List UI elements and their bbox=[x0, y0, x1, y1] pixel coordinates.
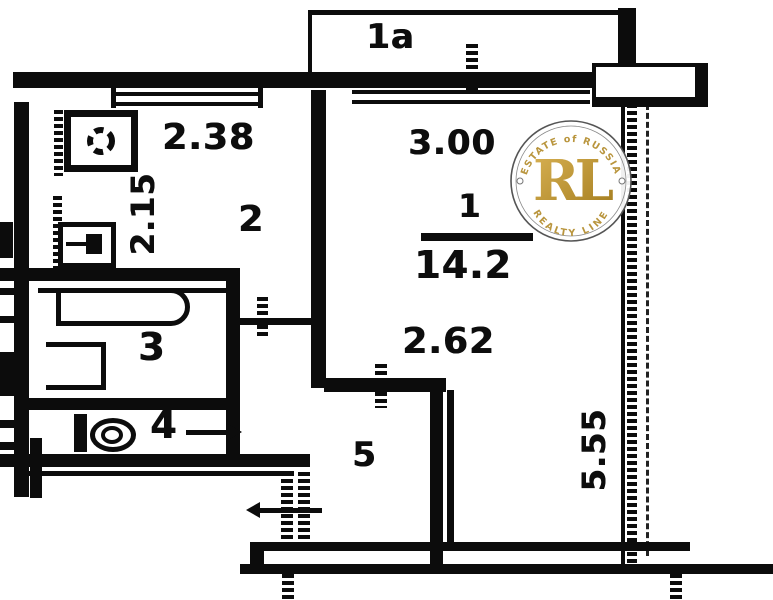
room-2-label: 2 bbox=[238, 202, 264, 238]
room-3-label: 3 bbox=[138, 328, 165, 366]
wall-wc-bottom bbox=[0, 454, 310, 467]
window-kitchen-line2 bbox=[114, 102, 262, 106]
toilet-tank-icon bbox=[74, 414, 87, 452]
watermark-monogram: RL bbox=[533, 148, 614, 214]
wall-left-lower bbox=[30, 438, 42, 498]
wall-bath-wc bbox=[24, 398, 226, 410]
wc-door-arrow-line bbox=[186, 430, 230, 435]
wall-balcony-left bbox=[308, 10, 312, 78]
balcony-label: 1a bbox=[366, 20, 415, 54]
wall-stub-left5 bbox=[0, 352, 20, 396]
wall-bottom-junction bbox=[250, 548, 264, 574]
wall-stub-left4 bbox=[20, 288, 27, 323]
wall-stub-left6 bbox=[0, 420, 28, 428]
wall-bottom-outer bbox=[240, 564, 773, 574]
stove-icon bbox=[64, 110, 138, 172]
floor-plan: 1a 2.38 2.15 2 3.00 1 14.2 2.62 5.55 3 4… bbox=[0, 0, 773, 600]
wall-balcony-top bbox=[308, 10, 634, 15]
window-kitchen-tick-right bbox=[258, 88, 263, 108]
kitchen-door-jamb bbox=[257, 297, 268, 339]
wall-bath-top bbox=[0, 268, 240, 281]
dim-room1-depth: 5.55 bbox=[576, 402, 612, 498]
room-5-label: 5 bbox=[352, 438, 377, 472]
wall-stub-bottom2 bbox=[670, 574, 682, 600]
wall-stub-left7 bbox=[0, 442, 28, 450]
room-1-label: 1 bbox=[458, 190, 481, 222]
dim-kitchen-width: 2.38 bbox=[162, 120, 255, 156]
watermark-dot-right bbox=[619, 178, 625, 184]
wall-kitchen-room1 bbox=[311, 90, 326, 388]
dim-room1-inner-width: 2.62 bbox=[402, 324, 495, 360]
wall-right-outer-dashed bbox=[646, 104, 649, 556]
window-kitchen-line1 bbox=[114, 92, 262, 96]
entrance-arrow-icon bbox=[246, 502, 260, 518]
window-room1-line1 bbox=[352, 90, 590, 94]
dim-kitchen-depth: 2.15 bbox=[125, 169, 161, 259]
wall-bottom-inner bbox=[250, 542, 690, 551]
room-1-area: 14.2 bbox=[414, 246, 512, 284]
washbasin-icon bbox=[46, 342, 106, 390]
stove-burner-icon bbox=[83, 123, 119, 159]
window-room1-line2 bbox=[352, 100, 590, 104]
balcony-door-jamb bbox=[466, 44, 478, 90]
room-4-label: 4 bbox=[150, 406, 177, 444]
bathtub-icon bbox=[56, 288, 190, 326]
wall-stub-bottom1 bbox=[282, 574, 294, 600]
wall-stub-left1 bbox=[0, 222, 13, 258]
watermark-dot-left bbox=[517, 178, 523, 184]
entrance-arrow-line bbox=[260, 508, 322, 513]
wall-hall-room1-v2 bbox=[447, 390, 454, 544]
toilet-bowl-inner-icon bbox=[101, 426, 123, 444]
wc-door-arrow-icon bbox=[228, 424, 242, 440]
watermark: ESTATE of RUSSIA REALTY LINE RL bbox=[508, 118, 634, 244]
window-kitchen-tick-left bbox=[111, 88, 116, 108]
wall-kitchen-hall bbox=[238, 318, 314, 325]
sink-tap-icon bbox=[86, 234, 102, 254]
wall-pier-top-right bbox=[592, 63, 708, 107]
wall-top bbox=[13, 72, 638, 88]
room1-door-jamb bbox=[375, 364, 387, 408]
kitchen-vent-hatch bbox=[54, 110, 63, 176]
dim-room1-width: 3.00 bbox=[408, 126, 496, 160]
corridor-inner-line bbox=[16, 471, 294, 476]
sink-tap-line bbox=[66, 242, 88, 246]
